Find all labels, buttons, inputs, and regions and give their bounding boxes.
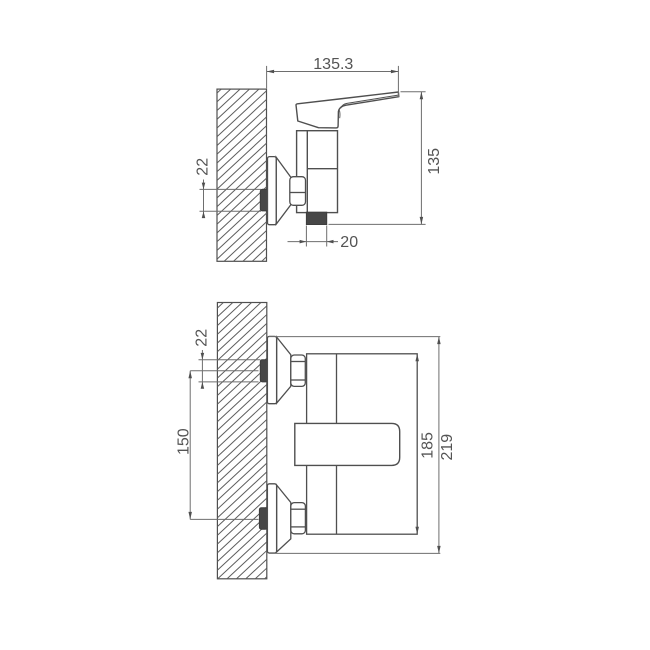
svg-text:22: 22 xyxy=(194,329,211,347)
svg-text:135: 135 xyxy=(426,148,443,175)
svg-text:185: 185 xyxy=(420,432,437,459)
svg-text:150: 150 xyxy=(176,428,193,455)
svg-text:219: 219 xyxy=(439,434,456,461)
svg-text:20: 20 xyxy=(340,234,358,251)
svg-text:135.3: 135.3 xyxy=(313,56,353,73)
svg-text:22: 22 xyxy=(194,158,211,176)
